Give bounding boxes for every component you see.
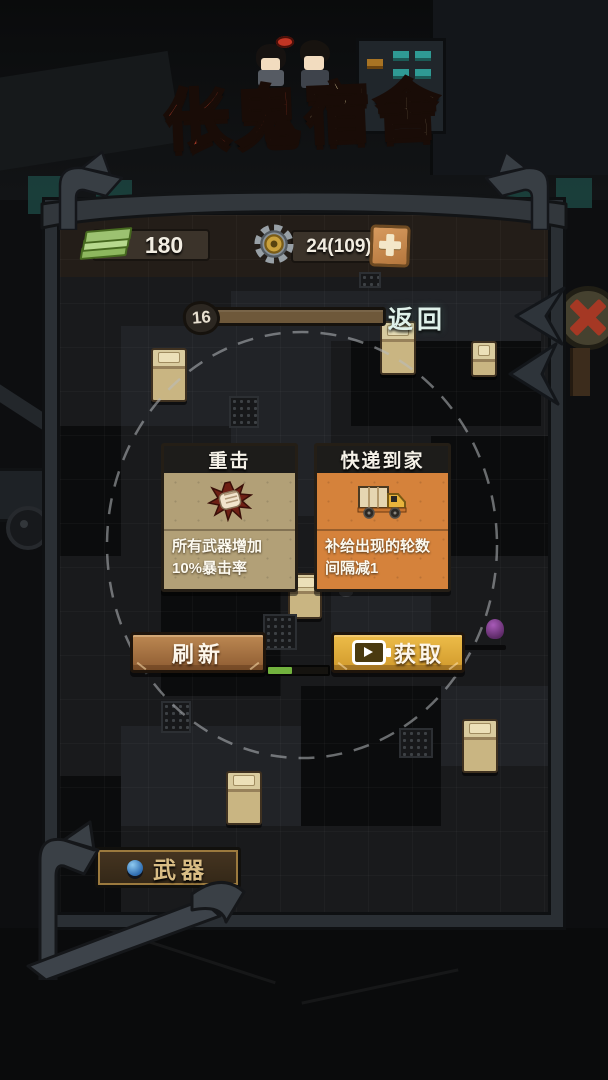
fist-icon: [164, 473, 295, 531]
game-title-red: 伥鬼: [163, 78, 306, 158]
sign-pole: [570, 348, 590, 396]
shelf-prop: [263, 614, 297, 650]
gear-icon: [251, 221, 297, 267]
claim-button-label: 获取: [394, 637, 444, 669]
refresh-button-label: 刷新: [172, 637, 224, 669]
shelf-prop: [359, 272, 381, 288]
bed-prop: [151, 348, 187, 402]
upgrade-card-express-delivery[interactable]: 快递到家 补给出现的轮数间隔减1: [314, 443, 451, 592]
gear-value: 24(109): [306, 236, 372, 258]
weapon-icon: [127, 860, 143, 876]
refresh-button[interactable]: 刷新: [130, 632, 266, 673]
gear-counter: 24(109): [291, 230, 379, 263]
money-counter: 180: [92, 229, 210, 261]
game-screen: 伥鬼宿舍: [0, 0, 608, 1080]
weapons-button-label: 武器: [153, 851, 209, 885]
card-title: 重击: [164, 446, 295, 473]
no-entry-sign-icon: [556, 286, 608, 350]
excavator-silhouette: [0, 383, 60, 436]
money-icon: [78, 227, 134, 267]
bed-prop: [471, 341, 497, 377]
ghost-shadow: [464, 645, 506, 650]
game-title-gold: 宿舍: [303, 72, 446, 152]
refresh-cooldown-fill: [268, 667, 292, 674]
bed-prop: [462, 719, 498, 773]
ghost-enemy: [486, 619, 504, 639]
card-body: 所有武器增加10%暴击率: [164, 473, 295, 589]
plus-icon[interactable]: [369, 224, 410, 267]
refresh-cooldown-bar: [266, 665, 330, 676]
truck-icon: [317, 473, 448, 531]
upgrade-card-heavy-strike[interactable]: 重击 所有武器增加10%暴击率: [161, 443, 298, 592]
round-progress-bar: [204, 307, 386, 326]
bed-prop: [226, 771, 262, 825]
back-button[interactable]: 返回: [388, 300, 468, 332]
corner-hook-icon: [468, 148, 578, 230]
excavator-wheel-hub: [20, 520, 28, 528]
claim-button[interactable]: 获取: [331, 632, 465, 673]
shelf-prop: [161, 701, 191, 733]
card-body: 补给出现的轮数间隔减1: [317, 473, 448, 589]
card-description: 所有武器增加10%暴击率: [164, 531, 295, 580]
video-ad-icon: [352, 640, 386, 665]
card-title: 快递到家: [317, 446, 448, 473]
shelf-prop: [399, 728, 433, 758]
card-description: 补给出现的轮数间隔减1: [317, 531, 448, 580]
shelf-prop: [229, 396, 259, 428]
weapons-button[interactable]: 武器: [95, 847, 241, 888]
money-value: 180: [145, 232, 183, 259]
corner-hook-icon: [30, 148, 140, 230]
excavator-wheel: [6, 506, 50, 550]
